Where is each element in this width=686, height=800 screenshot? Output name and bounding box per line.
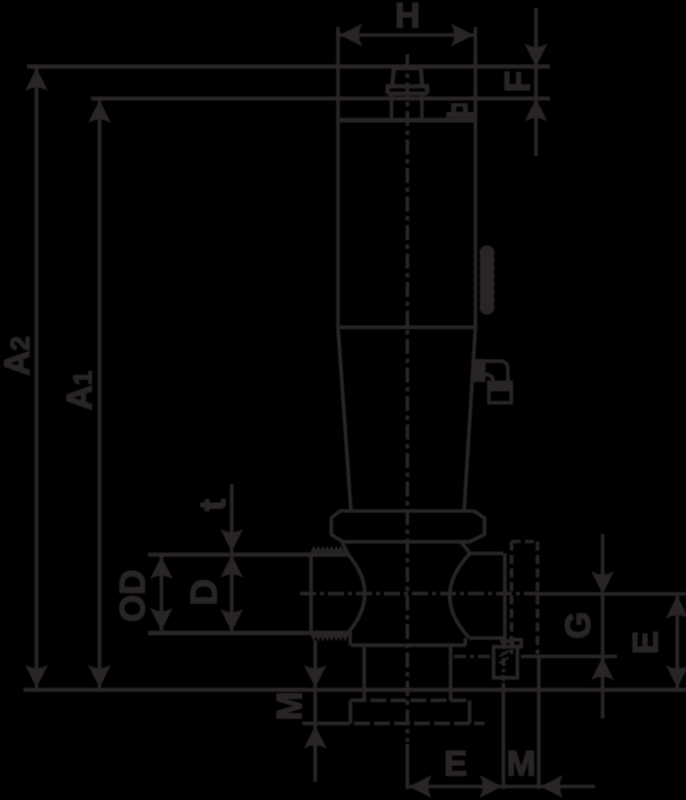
svg-text:M: M — [507, 744, 536, 783]
svg-text:G: G — [559, 612, 598, 639]
svg-text:E: E — [444, 744, 467, 783]
svg-text:H: H — [395, 0, 420, 36]
svg-text:E: E — [627, 631, 666, 654]
svg-text:D: D — [183, 579, 224, 606]
svg-text:t: t — [192, 499, 233, 511]
svg-text:F: F — [499, 71, 538, 92]
svg-text:M: M — [271, 691, 310, 720]
svg-text:A2: A2 — [0, 336, 37, 376]
svg-text:OD: OD — [113, 570, 152, 623]
svg-text:A1: A1 — [61, 371, 100, 411]
